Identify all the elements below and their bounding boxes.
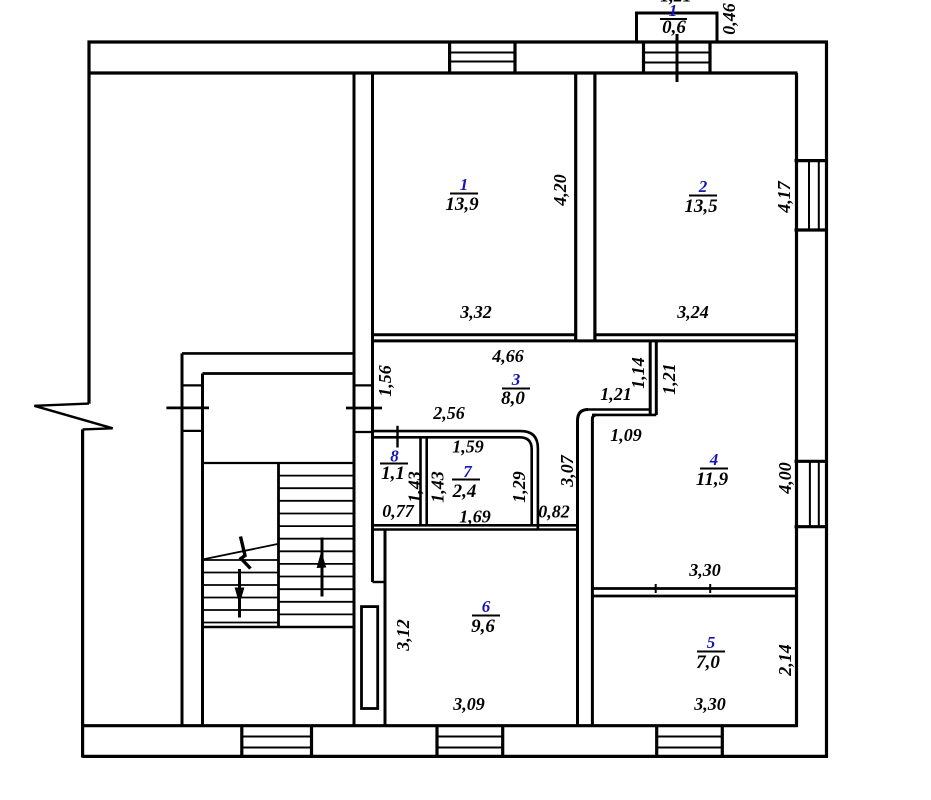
svg-text:9,6: 9,6 <box>471 616 495 637</box>
svg-text:1,69: 1,69 <box>459 507 491 527</box>
svg-text:8,0: 8,0 <box>501 388 525 409</box>
svg-text:2: 2 <box>698 177 708 196</box>
svg-text:1,21: 1,21 <box>659 363 679 395</box>
svg-text:6: 6 <box>482 597 491 616</box>
svg-text:1,14: 1,14 <box>628 357 648 389</box>
svg-text:2,4: 2,4 <box>452 481 477 502</box>
svg-text:4,00: 4,00 <box>775 462 795 495</box>
svg-text:13,5: 13,5 <box>684 196 718 217</box>
svg-text:3,30: 3,30 <box>693 694 726 714</box>
svg-text:1: 1 <box>460 175 469 194</box>
svg-text:3,09: 3,09 <box>452 694 485 714</box>
svg-text:0,46: 0,46 <box>719 3 739 35</box>
svg-text:3,30: 3,30 <box>688 560 721 580</box>
svg-text:0,82: 0,82 <box>538 502 570 522</box>
svg-text:2,56: 2,56 <box>432 403 465 423</box>
svg-text:0,77: 0,77 <box>382 501 415 521</box>
svg-text:5: 5 <box>707 633 716 652</box>
svg-text:0,6: 0,6 <box>662 17 686 38</box>
svg-text:4,17: 4,17 <box>774 180 794 214</box>
svg-text:1,09: 1,09 <box>610 425 642 445</box>
svg-text:4: 4 <box>709 450 719 469</box>
svg-text:3,12: 3,12 <box>393 619 413 652</box>
svg-text:1,1: 1,1 <box>381 463 405 484</box>
svg-text:1,43: 1,43 <box>428 471 448 503</box>
svg-text:1,59: 1,59 <box>452 437 484 457</box>
svg-text:3,07: 3,07 <box>557 454 577 488</box>
svg-text:4,66: 4,66 <box>491 346 524 366</box>
svg-text:7,0: 7,0 <box>696 652 720 673</box>
svg-text:1,29: 1,29 <box>509 471 529 503</box>
svg-text:4,20: 4,20 <box>550 174 570 207</box>
svg-text:11,9: 11,9 <box>696 469 729 490</box>
svg-text:3,24: 3,24 <box>676 302 709 322</box>
svg-text:3: 3 <box>511 370 521 389</box>
svg-text:3,32: 3,32 <box>459 302 492 322</box>
svg-text:13,9: 13,9 <box>445 194 479 215</box>
svg-text:1,56: 1,56 <box>375 365 395 397</box>
svg-text:2,14: 2,14 <box>775 644 795 677</box>
svg-text:1,43: 1,43 <box>405 471 425 503</box>
